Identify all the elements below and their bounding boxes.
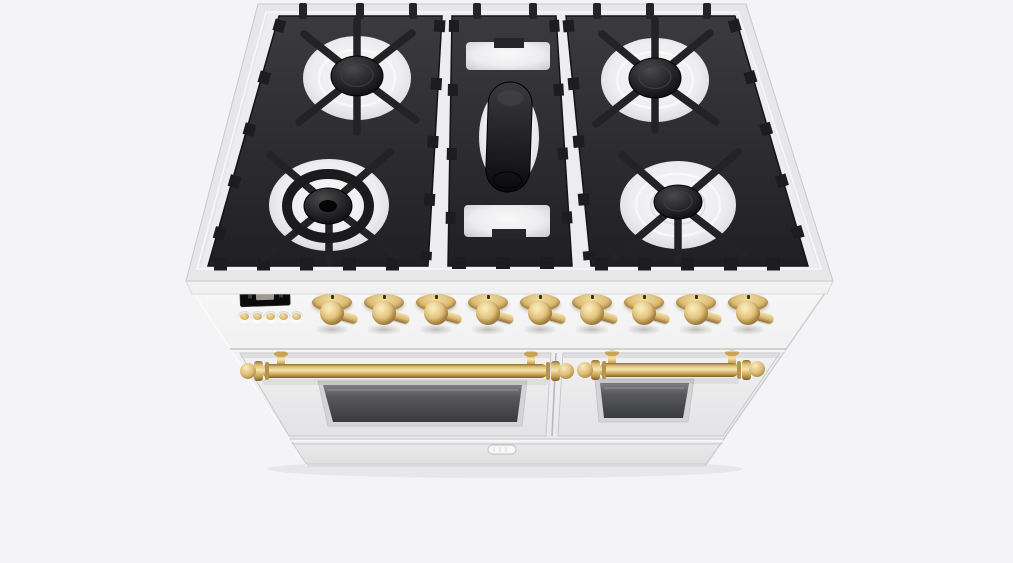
cooktop	[186, 3, 833, 294]
clock-button-2[interactable]	[251, 311, 264, 322]
knob-grip[interactable]	[372, 301, 396, 325]
lower-drawer-latch[interactable]	[488, 445, 516, 454]
knob-grip[interactable]	[684, 301, 708, 325]
knob-grip[interactable]	[528, 301, 552, 325]
control-knob-1[interactable]	[302, 291, 362, 345]
control-knob-7[interactable]	[614, 291, 674, 345]
control-knob-5[interactable]	[510, 291, 570, 345]
knob-shadow	[522, 324, 558, 335]
knob-grip[interactable]	[320, 301, 344, 325]
rear-left-burner	[331, 56, 383, 96]
knob-grip[interactable]	[580, 301, 604, 325]
render-stage	[0, 0, 1013, 563]
front-right-burner	[654, 185, 702, 219]
control-knob-8[interactable]	[666, 291, 726, 345]
knob-shadow	[730, 324, 766, 335]
range-cooker-render	[0, 0, 1013, 563]
center-oval-griddle-burner	[485, 81, 533, 192]
knob-grip[interactable]	[476, 301, 500, 325]
control-knob-2[interactable]	[354, 291, 414, 345]
left-oven-window	[318, 381, 527, 426]
clock-button-4[interactable]	[277, 311, 290, 322]
clock-button-5[interactable]	[290, 311, 303, 322]
clock-button-1[interactable]	[238, 311, 251, 322]
control-knob-4[interactable]	[458, 291, 518, 345]
knob-shadow	[470, 324, 506, 335]
knob-shadow	[626, 324, 662, 335]
control-knob-9[interactable]	[718, 291, 778, 345]
knob-grip[interactable]	[736, 301, 760, 325]
knob-shadow	[574, 324, 610, 335]
control-knob-6[interactable]	[562, 291, 622, 345]
knob-grip[interactable]	[632, 301, 656, 325]
rear-right-burner	[629, 58, 681, 98]
knob-shadow	[418, 324, 454, 335]
knob-shadow	[314, 324, 350, 335]
control-knob-3[interactable]	[406, 291, 466, 345]
knob-shadow	[678, 324, 714, 335]
right-oven-window	[595, 379, 694, 422]
knob-grip[interactable]	[424, 301, 448, 325]
clock-button-3[interactable]	[264, 311, 277, 322]
knob-shadow	[366, 324, 402, 335]
